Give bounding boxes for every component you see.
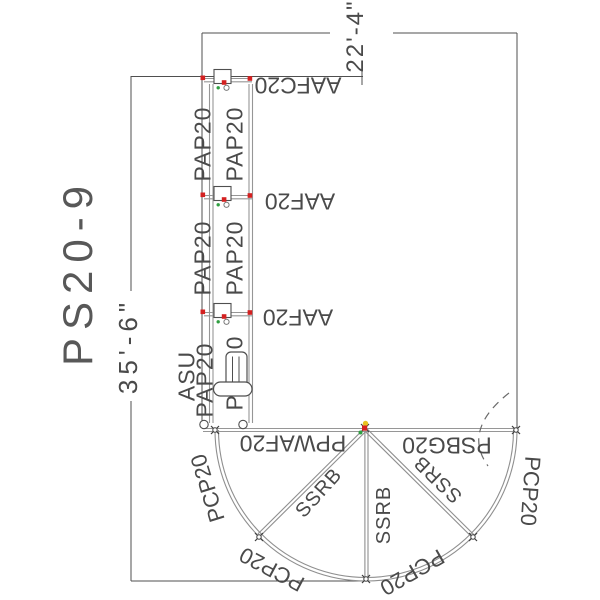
bay-2-left-label: PAP20: [192, 221, 215, 296]
stair-unit-label: ASU: [176, 351, 199, 401]
frame-label-3: AAF20: [263, 306, 333, 329]
arc-panel-label-4: PCP20: [517, 455, 544, 526]
post-base-circles: [200, 420, 247, 428]
cad-drawing-canvas: PS20-9 35'-6" 22'-4" AAFC20 AAF20 AAF20 …: [0, 0, 600, 600]
ring-top-right-label: PSBG20: [402, 434, 492, 457]
spoke-label-2: SSRB: [374, 486, 394, 544]
bay-1-right-label: PAP20: [224, 107, 247, 182]
spoke-label-1: SSRB: [292, 465, 346, 522]
spoke-label-3: SSRB: [410, 451, 466, 506]
bay-3-right-label: PAP20: [224, 336, 247, 411]
arc-panel-label-2: PCP20: [236, 543, 308, 595]
frame-label-1: AAFC20: [255, 74, 342, 97]
frame-label-2: AAF20: [265, 190, 335, 213]
title-label: PS20-9: [57, 178, 99, 366]
ring-top-left-label: PPWAF20: [240, 432, 347, 455]
arc-panel-label-1: PCP20: [187, 451, 228, 524]
bay-2-right-label: PAP20: [224, 221, 247, 296]
width-dimension-label: 22'-4": [344, 0, 368, 73]
center-node-marker: [359, 421, 370, 435]
height-dimension-label: 35'-6": [115, 298, 141, 394]
bay-1-left-label: PAP20: [192, 107, 215, 182]
tower-beams: [203, 84, 516, 432]
arc-panel-label-3: PCP20: [376, 545, 447, 599]
